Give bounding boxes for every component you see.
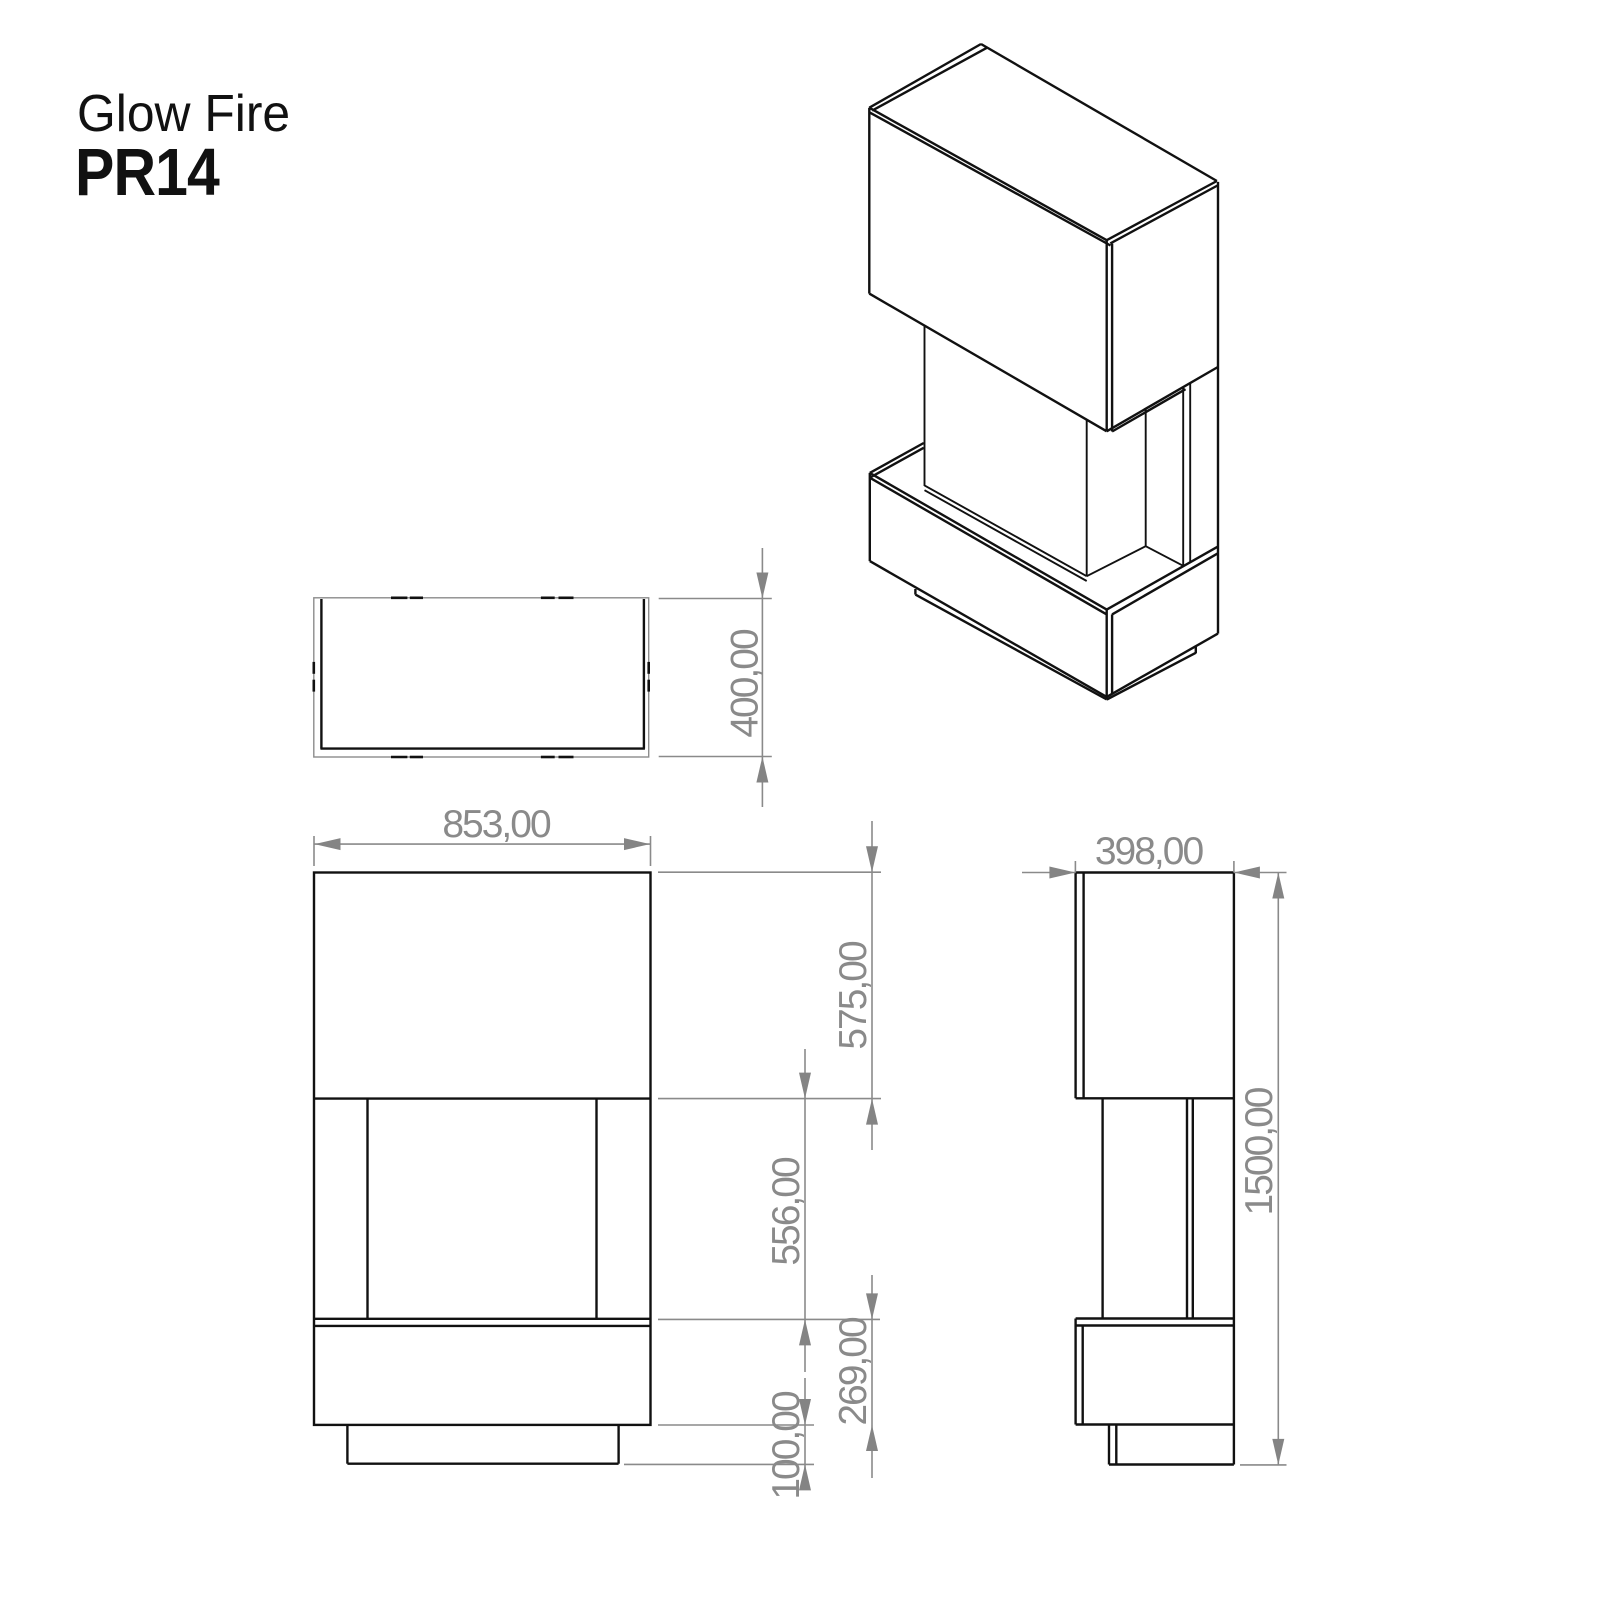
svg-text:398,00: 398,00 <box>1095 830 1204 873</box>
svg-text:853,00: 853,00 <box>442 803 551 846</box>
svg-text:100,00: 100,00 <box>765 1391 808 1500</box>
svg-text:269,00: 269,00 <box>832 1317 875 1426</box>
svg-text:575,00: 575,00 <box>832 941 875 1050</box>
svg-text:556,00: 556,00 <box>765 1157 808 1266</box>
svg-text:400,00: 400,00 <box>724 629 767 738</box>
svg-text:1500,00: 1500,00 <box>1238 1087 1281 1215</box>
